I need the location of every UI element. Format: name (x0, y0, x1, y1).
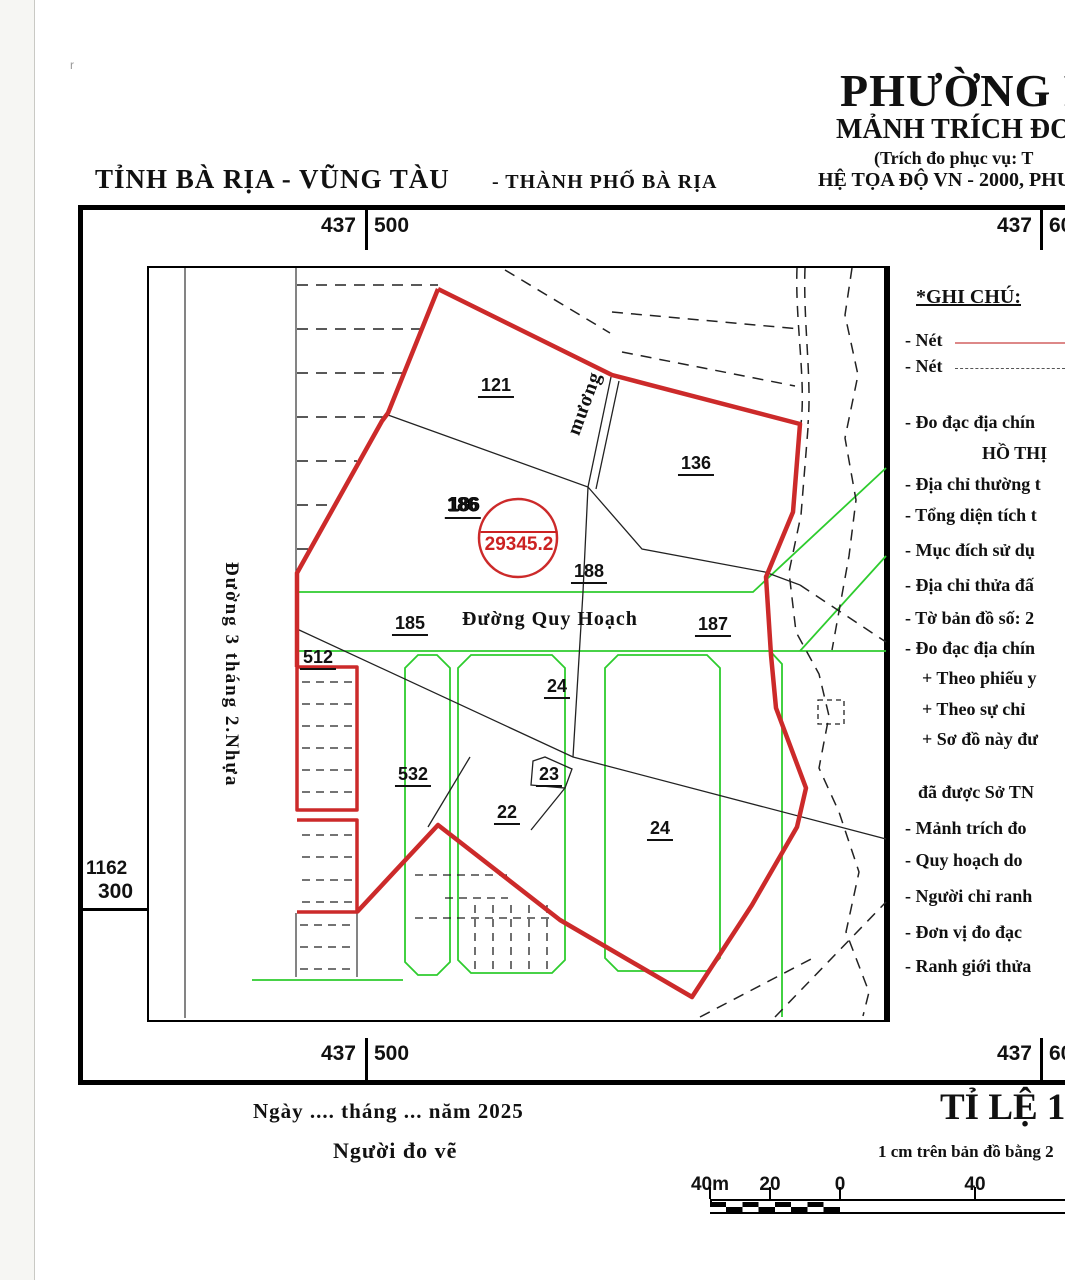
parcel-label-23: 23 (536, 764, 562, 787)
grid-tick-bottom-left (365, 1038, 368, 1082)
legend-item: - Địa chỉ thửa đấ (905, 575, 1034, 596)
outer-frame-top (78, 205, 1065, 210)
red-survey-boundary (297, 289, 806, 997)
outer-frame-left (78, 205, 83, 1085)
legend-item: - Đo đạc địa chín (905, 638, 1035, 659)
grid-label-bottom-right-x: 437 (940, 1042, 1032, 1066)
city-title: - THÀNH PHỐ BÀ RỊA (492, 171, 717, 194)
parcel-label-512: 512 (300, 647, 336, 670)
legend-item: - Đơn vị đo đạc (905, 922, 1022, 943)
legend-item: - Địa chỉ thường t (905, 474, 1041, 495)
parcel-label-24a: 24 (544, 676, 570, 699)
grid-label-left-y: 300 (98, 880, 133, 904)
grid-tick-top-right (1040, 210, 1043, 250)
grid-tick-left (80, 908, 147, 911)
parcel-label-187: 187 (695, 614, 731, 637)
corner-artifact: r (70, 58, 74, 72)
parcel-label-185: 185 (392, 613, 428, 636)
grid-label-top-left-y: 500 (374, 214, 409, 238)
legend-line-red-label: - Nét (905, 330, 942, 351)
cadastral-map-document: r PHƯỜNG P MẢNH TRÍCH ĐO Đ (Trích đo phụ… (0, 0, 1065, 1280)
province-title: TỈNH BÀ RỊA - VŨNG TÀU (95, 164, 450, 195)
document-title: MẢNH TRÍCH ĐO Đ (836, 114, 1065, 146)
grid-label-top-right-x: 437 (940, 214, 1032, 238)
grid-tick-top-left (365, 210, 368, 250)
legend-item: - Tờ bản đồ số: 2 (905, 608, 1034, 629)
parcel-label-188: 188 (571, 561, 607, 584)
scan-edge-band (0, 0, 35, 1280)
legend-line-dashed-sample (955, 368, 1065, 369)
left-road-label: Đường 3 tháng 2.Nhựa (220, 562, 242, 787)
grid-label-top-right-y: 60 (1049, 214, 1065, 238)
document-subtitle: (Trích đo phục vụ: T (874, 148, 1033, 169)
grid-label-top-left-x: 437 (240, 214, 356, 238)
legend-item: - Mục đích sử dụ (905, 540, 1035, 561)
legend-item: + Sơ đồ này đư (922, 729, 1038, 750)
parcel-label-121: 121 (478, 375, 514, 398)
legend-item: - Mảnh trích đo (905, 818, 1027, 839)
parcel-label-24b: 24 (647, 818, 673, 841)
grid-label-bottom-right-y: 60 (1049, 1042, 1065, 1066)
scale-title: TỈ LỆ 1/ (940, 1086, 1065, 1129)
legend-line-dashed-label: - Nét (905, 356, 942, 377)
legend-title: *GHI CHÚ: (916, 286, 1021, 309)
planned-road-label: Đường Quy Hoạch (462, 608, 638, 631)
surveyor-line: Người đo vẽ (333, 1138, 457, 1164)
legend-item: - Người chỉ ranh (905, 886, 1032, 907)
parcel-label-186-highlight: 186 (445, 494, 481, 519)
parcel-label-532: 532 (395, 764, 431, 787)
grid-label-bottom-left-x: 437 (240, 1042, 356, 1066)
legend-item: đã được Sở TN (918, 782, 1034, 803)
legend-item: - Ranh giới thửa (905, 956, 1031, 977)
ward-title: PHƯỜNG P (840, 64, 1065, 117)
outer-frame-bottom (78, 1080, 1065, 1085)
grid-tick-bottom-right (1040, 1038, 1043, 1082)
legend-line-red-sample (955, 342, 1065, 344)
parcel-label-136: 136 (678, 453, 714, 476)
legend-item: HỒ THỊ (982, 443, 1047, 464)
legend-item: - Tổng diện tích t (905, 505, 1037, 526)
scale-note: 1 cm trên bản đồ bằng 2 (878, 1142, 1054, 1162)
grid-label-bottom-left-y: 500 (374, 1042, 409, 1066)
legend-item: - Đo đạc địa chín (905, 412, 1035, 433)
highlight-area-value: 29345.2 (481, 531, 558, 556)
legend-item: + Theo sự chỉ (922, 699, 1025, 720)
grid-label-left-x: 1162 (86, 858, 127, 880)
map-canvas (147, 266, 888, 1018)
coordinate-system-line: HỆ TỌA ĐỘ VN - 2000, PHU (818, 169, 1065, 192)
legend-item: + Theo phiếu y (922, 668, 1036, 689)
parcel-label-22: 22 (494, 802, 520, 825)
legend-item: - Quy hoạch do (905, 850, 1023, 871)
road-edge-lines (185, 268, 357, 1018)
date-line: Ngày .... tháng ... năm 2025 (253, 1099, 524, 1124)
